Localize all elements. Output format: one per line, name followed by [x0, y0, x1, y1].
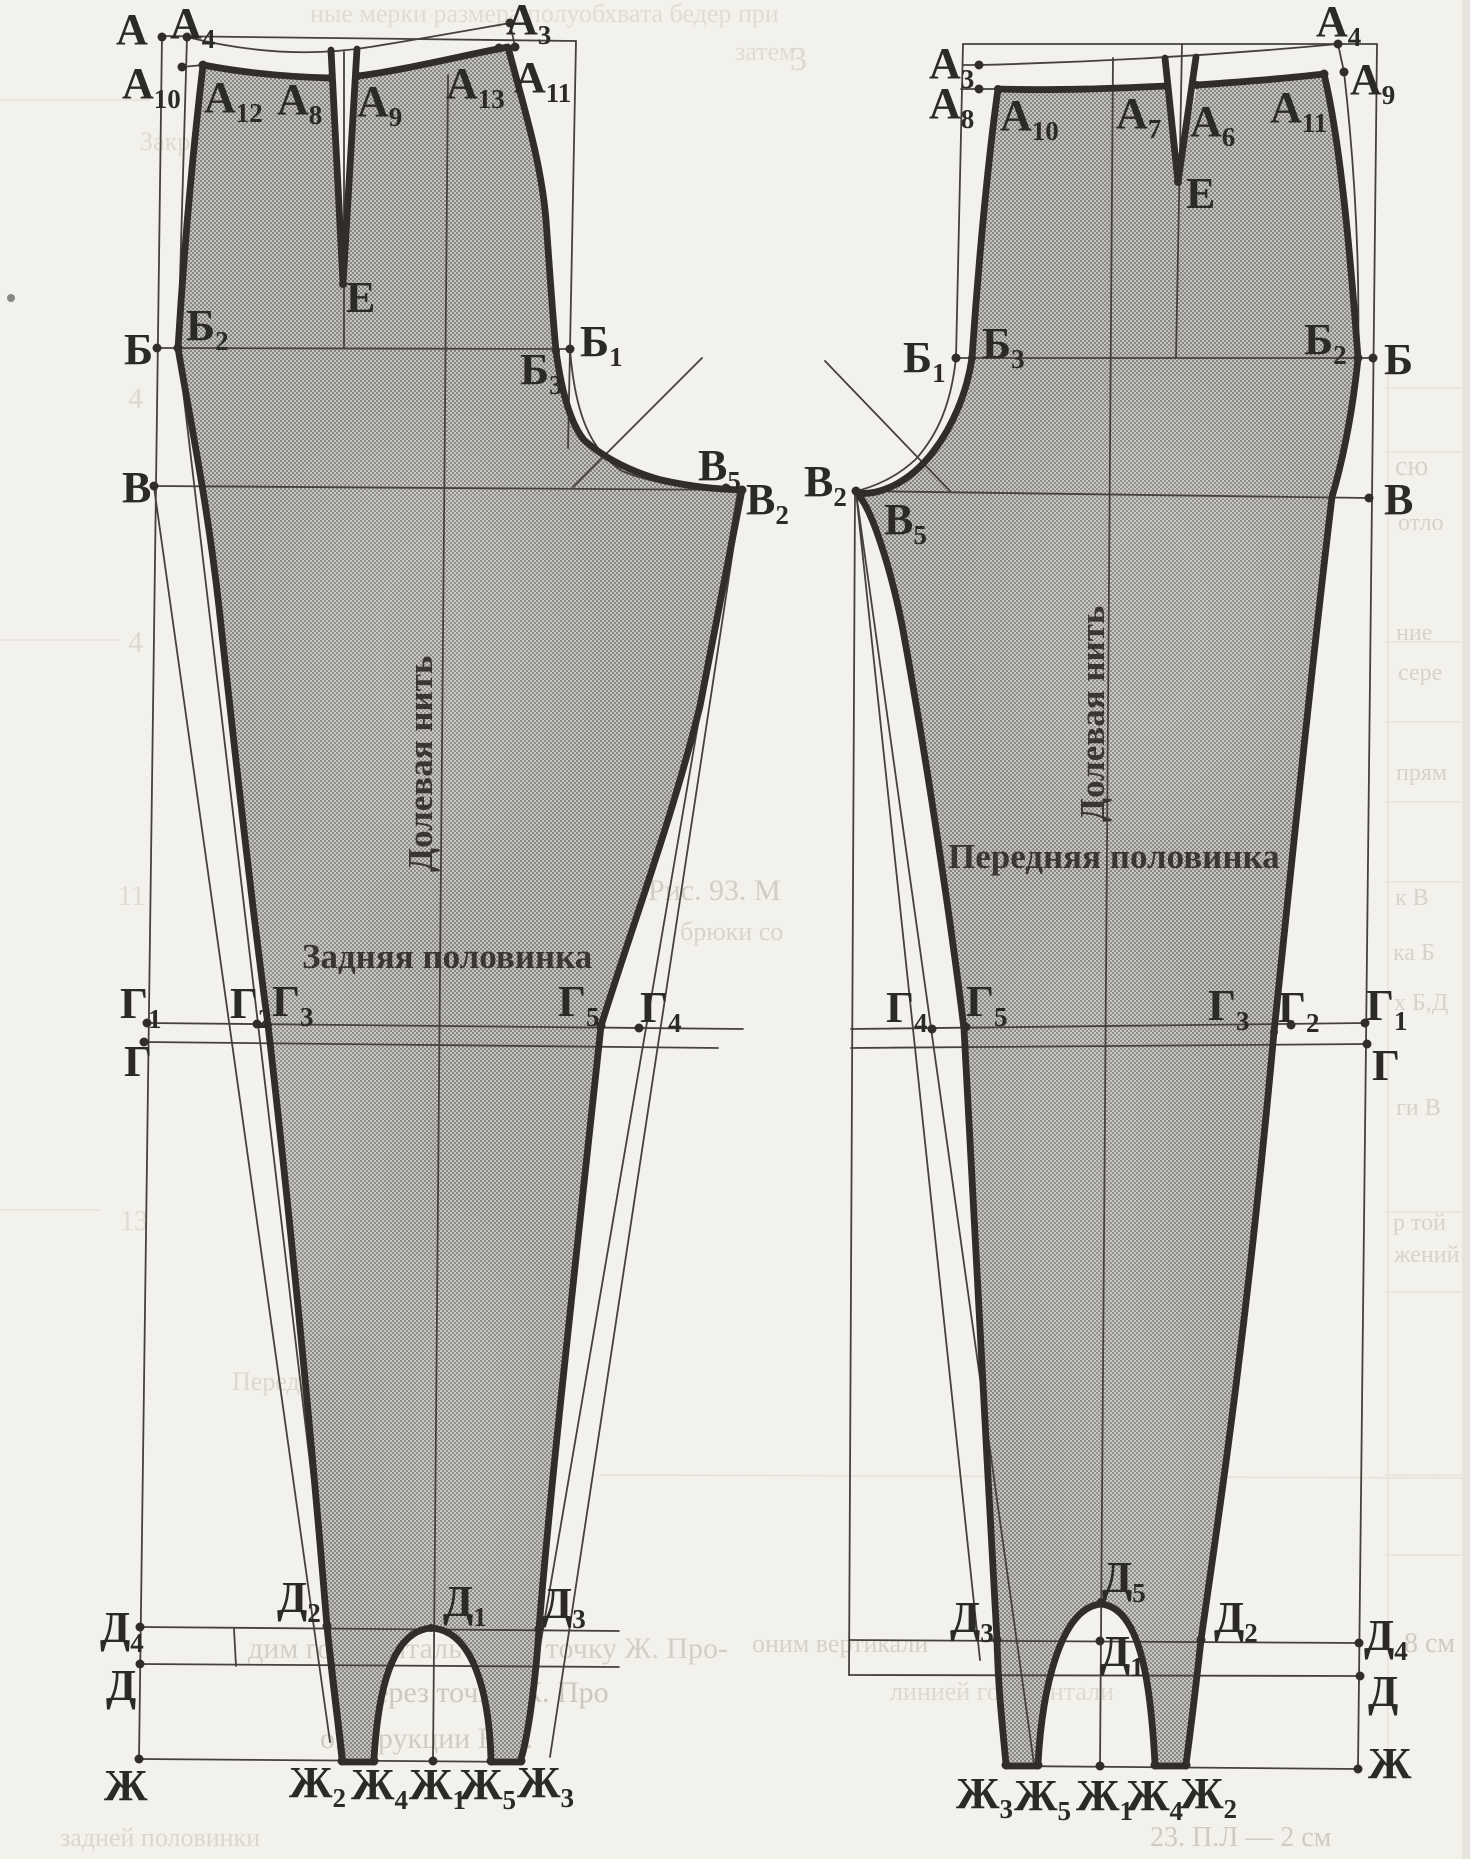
svg-text:затем: затем — [735, 37, 796, 66]
svg-text:Задняя половинка: Задняя половинка — [302, 937, 592, 976]
svg-text:р той: р той — [1393, 1210, 1446, 1236]
svg-text:В: В — [122, 463, 151, 512]
svg-text:3: 3 — [790, 41, 807, 78]
svg-text:Е: Е — [1186, 169, 1215, 218]
svg-text:задней половинки: задней половинки — [60, 1823, 260, 1852]
svg-text:Долевая нить: Долевая нить — [401, 656, 440, 872]
svg-text:ги В: ги В — [1396, 1095, 1441, 1121]
svg-text:В: В — [1384, 475, 1413, 524]
svg-text:11: 11 — [118, 881, 145, 912]
svg-text:4: 4 — [128, 382, 143, 415]
svg-text:жений: жений — [1393, 1242, 1460, 1268]
svg-text:ка Б: ка Б — [1393, 940, 1435, 966]
svg-text:23. П.Л — 2 см: 23. П.Л — 2 см — [1150, 1822, 1332, 1853]
svg-text:сере: сере — [1398, 660, 1442, 686]
svg-text:Ж: Ж — [1368, 1739, 1412, 1788]
svg-text:Передняя половинка: Передняя половинка — [948, 837, 1280, 876]
svg-text:А: А — [116, 5, 148, 54]
svg-text:Г: Г — [1372, 1041, 1400, 1090]
svg-text:Е: Е — [346, 273, 375, 322]
svg-text:Б: Б — [1384, 335, 1413, 384]
svg-text:оним вертикали: оним вертикали — [752, 1629, 928, 1658]
svg-text:брюки со: брюки со — [680, 917, 783, 946]
svg-text:Б: Б — [124, 325, 153, 374]
svg-text:Г: Г — [124, 1037, 152, 1086]
svg-text:Д: Д — [1368, 1667, 1398, 1716]
svg-text:Ж: Ж — [104, 1761, 148, 1810]
svg-text:к В: к В — [1395, 885, 1429, 911]
svg-text:8 см: 8 см — [1404, 1628, 1455, 1659]
svg-text:Д: Д — [106, 1661, 136, 1710]
svg-text:прям: прям — [1396, 760, 1447, 786]
svg-text:13: 13 — [120, 1206, 148, 1237]
svg-text:4: 4 — [128, 626, 143, 659]
svg-text:Долевая нить: Долевая нить — [1073, 606, 1112, 822]
